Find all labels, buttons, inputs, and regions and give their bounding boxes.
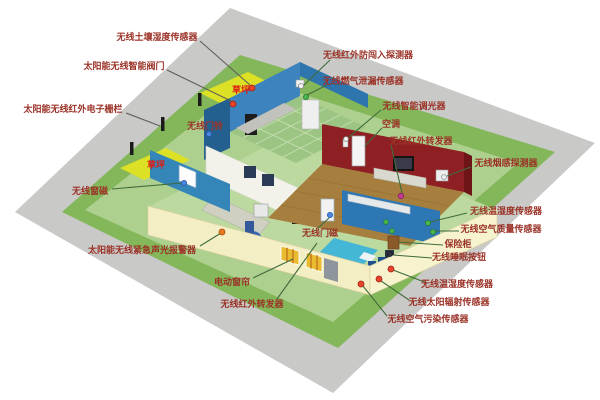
ir-repeater-top-text: 无线红外转发器 <box>388 135 453 147</box>
fridge-icon <box>302 100 319 129</box>
air-pollution-sensor-dot <box>358 281 364 287</box>
smart-valve-dot <box>230 101 236 107</box>
intrusion-detector-dot <box>298 83 303 88</box>
wall-tv-screen <box>395 158 412 169</box>
solar-radiation-sensor-text: 无线太阳辐射传感器 <box>407 296 490 308</box>
emergency-alarm-dot <box>219 229 225 235</box>
air-quality-sensor-dot <box>430 229 435 234</box>
soil-moisture-sensor-text: 无线土壤湿度传感器 <box>115 31 198 43</box>
air-quality-sensor-text: 无线空气质量传感器 <box>459 223 542 235</box>
label-lawn-top: 草坪 <box>232 84 250 96</box>
gas-leak-sensor-dot <box>303 94 308 99</box>
air-conditioner-text: 空调 <box>382 118 400 130</box>
door-magnet-dot <box>327 212 332 217</box>
electronic-fence-text: 太阳能无线红外电子栅栏 <box>22 103 122 115</box>
solar-radiation-sensor-dot <box>376 276 382 282</box>
gas-leak-sensor-text: 无线燃气泄漏传感器 <box>321 75 404 87</box>
intrusion-detector-text: 无线红外防闯入探测器 <box>322 49 414 61</box>
window-magnet-dot <box>181 180 186 185</box>
computer-icon <box>254 204 268 217</box>
window-magnet-text: 无线窗磁 <box>71 185 108 197</box>
smart-home-diagram: 无线土壤湿度传感器太阳能无线智能阀门太阳能无线红外电子栅栏无线门铃无线红外防闯入… <box>0 0 600 400</box>
electric-curtain-text: 电动窗帘 <box>214 276 250 288</box>
temp-humidity-sensor-bottom-text: 无线温湿度传感器 <box>420 278 494 290</box>
ac-unit-icon <box>352 136 365 166</box>
front-door-gap <box>324 258 338 282</box>
lawn-top-text: 草坪 <box>232 84 250 96</box>
smoke-detector-text: 无线烟感探测器 <box>473 157 538 169</box>
smart-dimmer-text: 无线智能调光器 <box>381 100 446 112</box>
temp-humidity-sensor-right-text: 无线温湿度传感器 <box>469 205 543 217</box>
bedroom-door-icon <box>321 199 334 221</box>
fence-post-icon <box>161 117 165 131</box>
smart-valve-text: 太阳能无线智能阀门 <box>82 60 164 72</box>
ir-repeater-bottom-text: 无线红外转发器 <box>219 298 284 310</box>
wall-sensor-dot <box>384 220 389 225</box>
sleep-button-dot <box>388 252 393 257</box>
smart-dimmer-dot <box>344 137 349 142</box>
doorbell-text: 无线门铃 <box>186 120 224 132</box>
red-wall-return <box>464 152 472 196</box>
diagram-svg: 无线土壤湿度传感器太阳能无线智能阀门太阳能无线红外电子栅栏无线门铃无线红外防闯入… <box>0 0 600 400</box>
air-pollution-sensor-text: 无线空气污染传感器 <box>386 313 469 325</box>
door-magnet-text: 无线门磁 <box>301 227 338 239</box>
fence-post-icon <box>130 142 134 155</box>
emergency-alarm-text: 太阳能无线紧急声光报警器 <box>87 244 197 256</box>
picture-frame-icon <box>262 174 274 186</box>
sleep-button-text: 无线睡眠按钮 <box>431 251 486 263</box>
temp-humidity-sensor-bottom-dot <box>388 266 394 272</box>
lawn-left-text: 草坪 <box>147 159 165 171</box>
safe-box-text: 保险柜 <box>443 238 471 250</box>
smoke-detector-dot <box>442 175 447 180</box>
safe-box-icon <box>388 236 399 249</box>
fence-post-icon <box>198 93 202 106</box>
label-lawn-left: 草坪 <box>147 159 165 171</box>
wall-sensor-dot <box>390 229 395 234</box>
ir-repeater-top-dot <box>398 193 404 199</box>
temp-humidity-sensor-right-dot <box>425 220 430 225</box>
doorbell-dot <box>206 131 211 136</box>
picture-frame-icon <box>244 166 256 178</box>
